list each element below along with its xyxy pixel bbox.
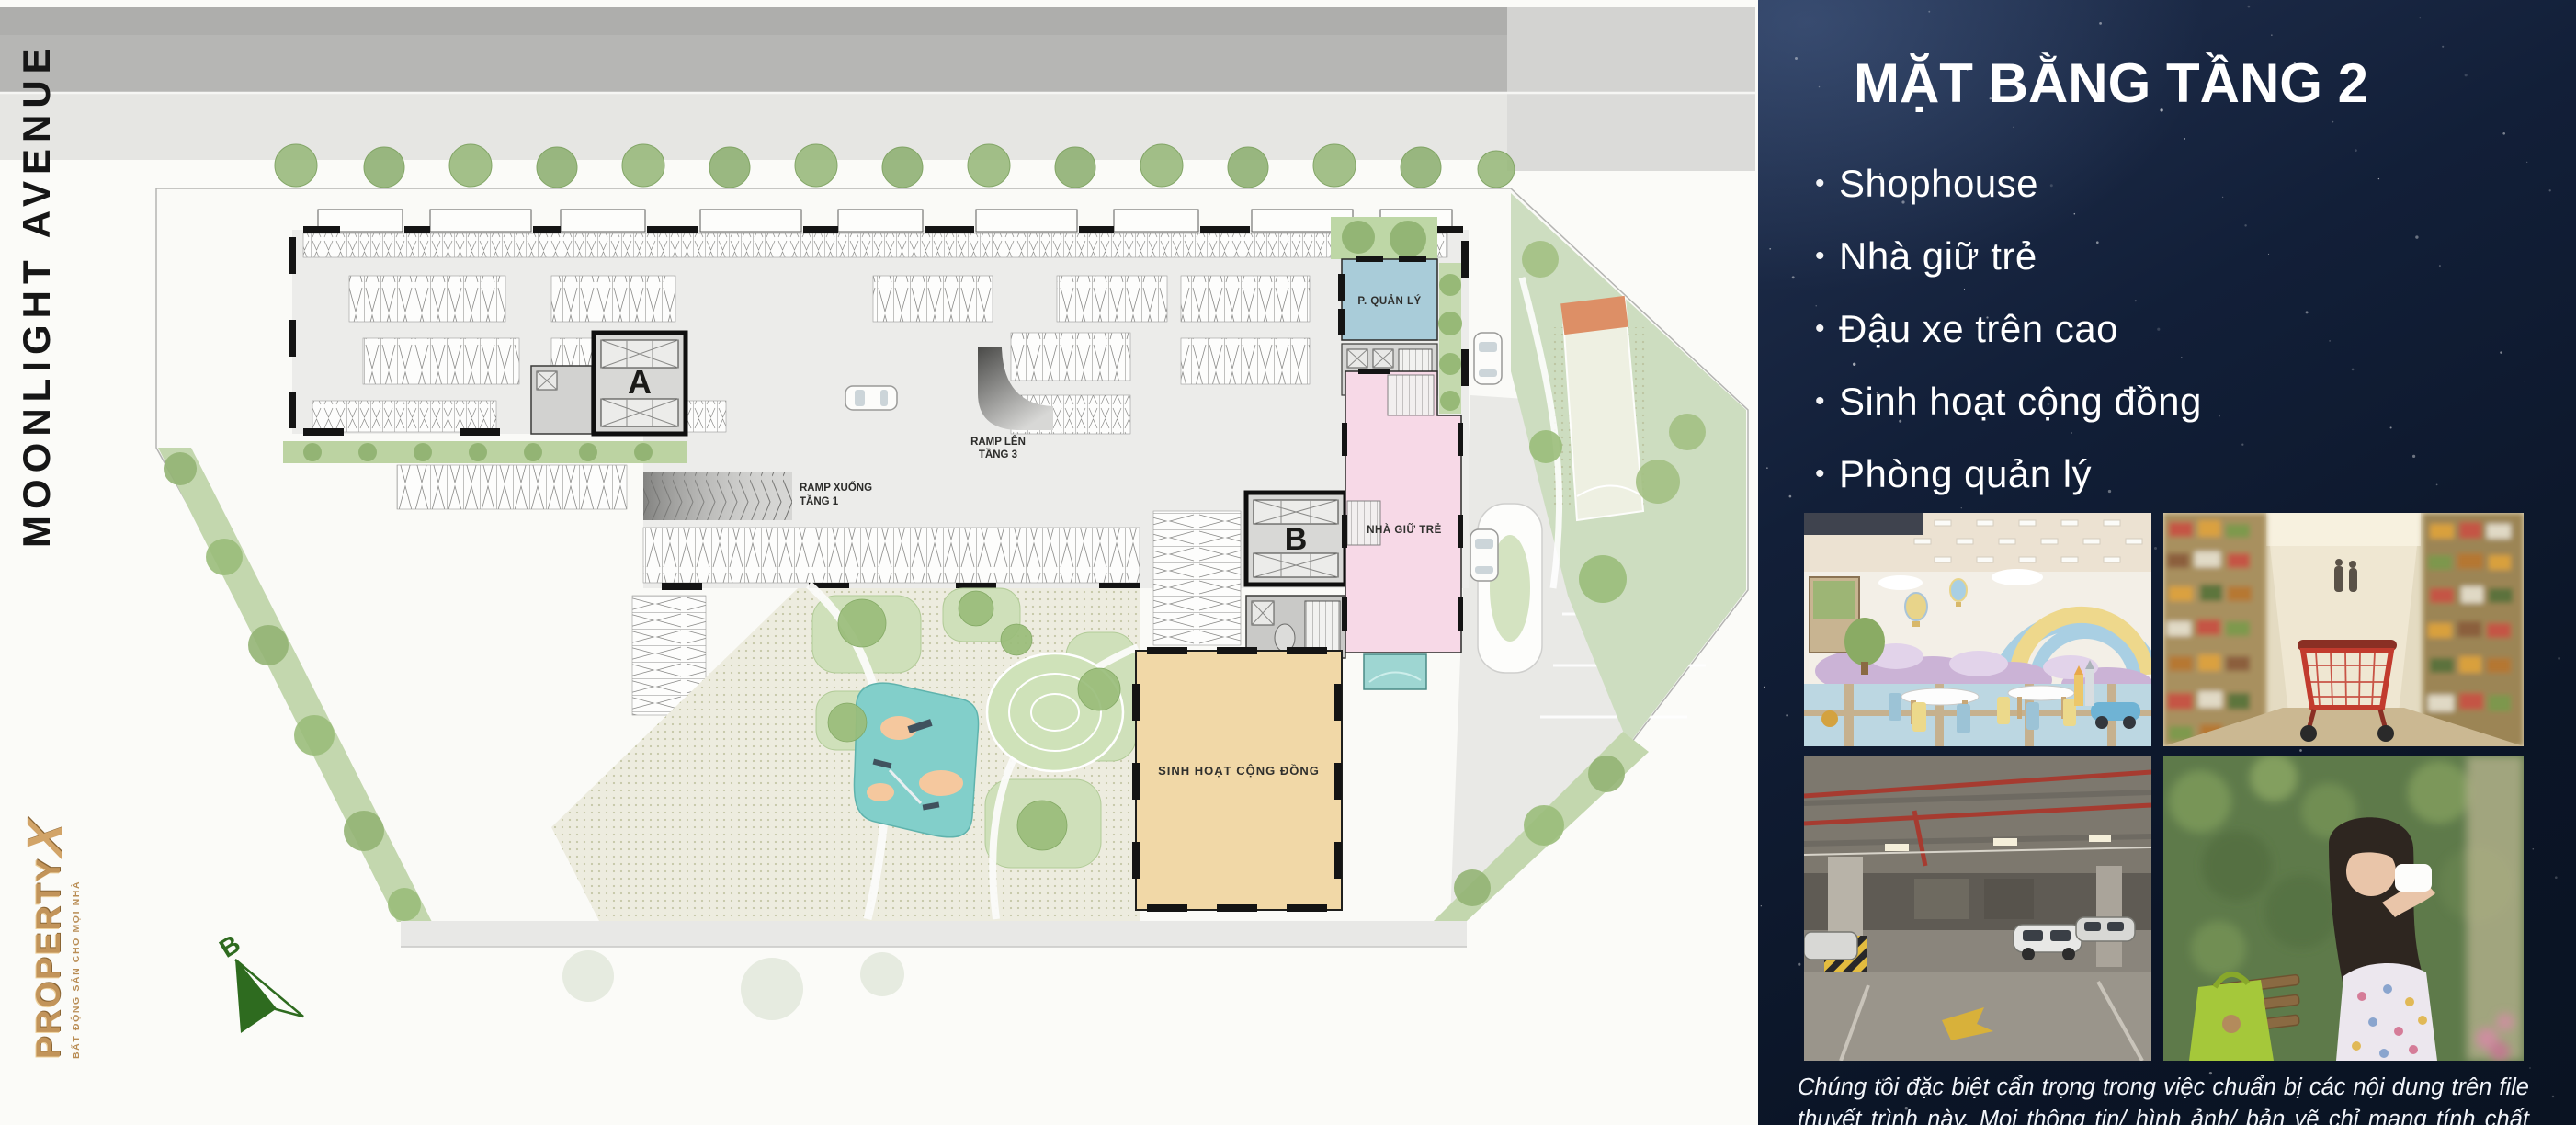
feature-list: • Shophouse • Nhà giữ trẻ • Đậu xe trên … (1815, 147, 2202, 510)
bullet-icon: • (1815, 459, 1839, 490)
ramp-up-label: RAMP LÊN (970, 436, 1026, 448)
community-hall-label: SINH HOẠT CỘNG ĐỒNG (1158, 764, 1320, 778)
bullet-icon: • (1815, 168, 1839, 199)
right-shelf (2423, 513, 2524, 746)
photo-daycare-room (1804, 513, 2151, 746)
feature-label: Đậu xe trên cao (1839, 307, 2118, 351)
feature-item: • Phòng quản lý (1815, 437, 2202, 510)
tower-b-core: B (1246, 493, 1345, 658)
toy-top (1821, 710, 1838, 727)
info-panel: MẶT BẰNG TẦNG 2 • Shophouse • Nhà giữ tr… (1758, 0, 2576, 1125)
feature-label: Nhà giữ trẻ (1839, 234, 2037, 278)
logo-tagline: BẤT ĐỘNG SẢN CHO MỌI NHÀ (71, 849, 82, 1059)
propertyx-logo: PROPERTY X BẤT ĐỘNG SẢN CHO MỌI NHÀ (26, 849, 127, 1059)
photo-supermarket-aisle (2163, 513, 2524, 746)
road-moonlight-avenue (0, 7, 1755, 171)
floor-plan-drawing: RAMP LÊN TẦNG 3 RAMP XUỐNG TẦNG 1 (0, 0, 1758, 1125)
bullet-icon: • (1815, 313, 1839, 345)
photo-woman-coffee (2163, 756, 2524, 1061)
street-trees (275, 144, 1515, 187)
community-hall (1136, 651, 1342, 910)
ramp-down-label: TẦNG 1 (800, 495, 839, 507)
slide: RAMP LÊN TẦNG 3 RAMP XUỐNG TẦNG 1 (0, 0, 2576, 1125)
bullet-icon: • (1815, 241, 1839, 272)
feature-item: • Nhà giữ trẻ (1815, 220, 2202, 292)
panel-title: MẶT BẰNG TẦNG 2 (1854, 51, 2368, 115)
feature-label: Shophouse (1839, 162, 2038, 206)
feature-item: • Đậu xe trên cao (1815, 292, 2202, 365)
photo-grid (1804, 513, 2532, 1061)
ramp-up-label: TẦNG 3 (979, 449, 1017, 460)
floor-plan-area: RAMP LÊN TẦNG 3 RAMP XUỐNG TẦNG 1 (0, 0, 1758, 1125)
feature-label: Sinh hoạt cộng đồng (1839, 380, 2202, 424)
tower-a-label: A (628, 363, 652, 401)
logo-brand-text: PROPERTY (31, 857, 65, 1059)
bullet-icon: • (1815, 386, 1839, 417)
management-room-label: P. QUẢN LÝ (1357, 295, 1421, 307)
parked-car (845, 386, 897, 410)
parked-car (1474, 333, 1502, 384)
floral-dress (2336, 963, 2437, 1061)
coffee-cup (2395, 864, 2432, 892)
street-name: MOONLIGHT AVENUE (15, 33, 64, 548)
feature-label: Phòng quản lý (1839, 452, 2092, 496)
disclaimer-text: Chúng tôi đặc biệt cẩn trọng trong việc … (1798, 1072, 2529, 1125)
logo-x-swoosh: X (26, 819, 65, 858)
feature-item: • Sinh hoạt cộng đồng (1815, 365, 2202, 437)
feature-item: • Shophouse (1815, 147, 2202, 220)
photo-parking-garage (1804, 756, 2151, 1061)
ramp-down-label: RAMP XUỐNG (800, 481, 872, 494)
playground (854, 683, 978, 837)
left-shelf (2163, 513, 2266, 746)
tower-b-label: B (1285, 522, 1308, 557)
green-shopping-bag (2189, 974, 2274, 1061)
parked-car (1470, 529, 1498, 581)
indoor-tree (1844, 618, 1885, 665)
daycare-room-label: NHÀ GIỮ TRẺ (1367, 524, 1442, 536)
